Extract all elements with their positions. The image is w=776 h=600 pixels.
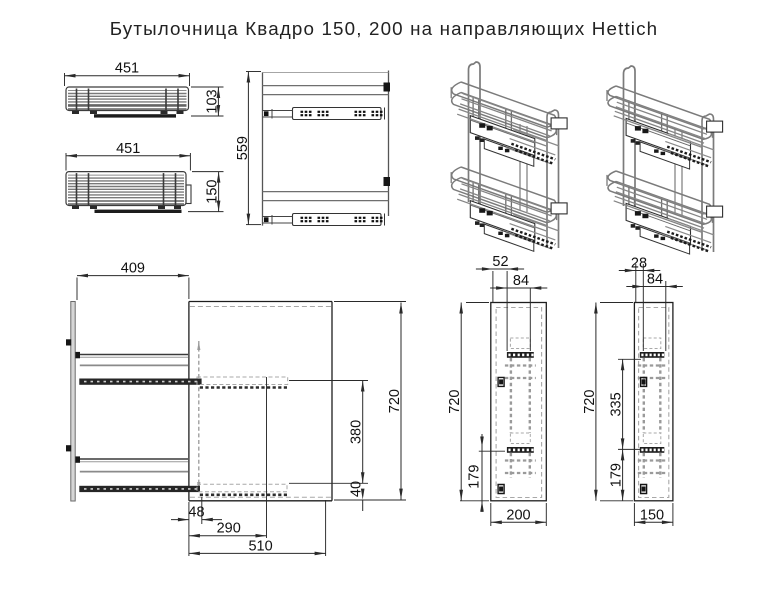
- svg-text:720: 720: [387, 389, 403, 413]
- svg-text:40: 40: [349, 481, 365, 497]
- svg-text:290: 290: [217, 521, 241, 537]
- svg-text:720: 720: [447, 389, 463, 413]
- svg-text:510: 510: [248, 538, 272, 554]
- svg-text:Бутылочница Квадро 150, 200 на: Бутылочница Квадро 150, 200 на направляю…: [110, 18, 659, 39]
- svg-text:335: 335: [609, 392, 625, 416]
- svg-text:150: 150: [205, 179, 221, 203]
- svg-text:200: 200: [506, 507, 530, 523]
- svg-text:48: 48: [188, 505, 204, 521]
- svg-text:150: 150: [640, 507, 664, 523]
- svg-text:52: 52: [492, 254, 508, 270]
- svg-text:84: 84: [513, 273, 529, 289]
- svg-text:28: 28: [631, 256, 647, 272]
- svg-text:84: 84: [647, 272, 663, 288]
- svg-text:380: 380: [349, 420, 365, 444]
- svg-text:451: 451: [116, 141, 140, 157]
- svg-text:103: 103: [204, 89, 220, 113]
- svg-text:720: 720: [582, 389, 598, 413]
- svg-text:409: 409: [121, 261, 145, 277]
- svg-text:179: 179: [609, 463, 625, 487]
- svg-text:179: 179: [467, 465, 483, 489]
- svg-text:559: 559: [235, 136, 251, 160]
- svg-text:451: 451: [115, 61, 139, 77]
